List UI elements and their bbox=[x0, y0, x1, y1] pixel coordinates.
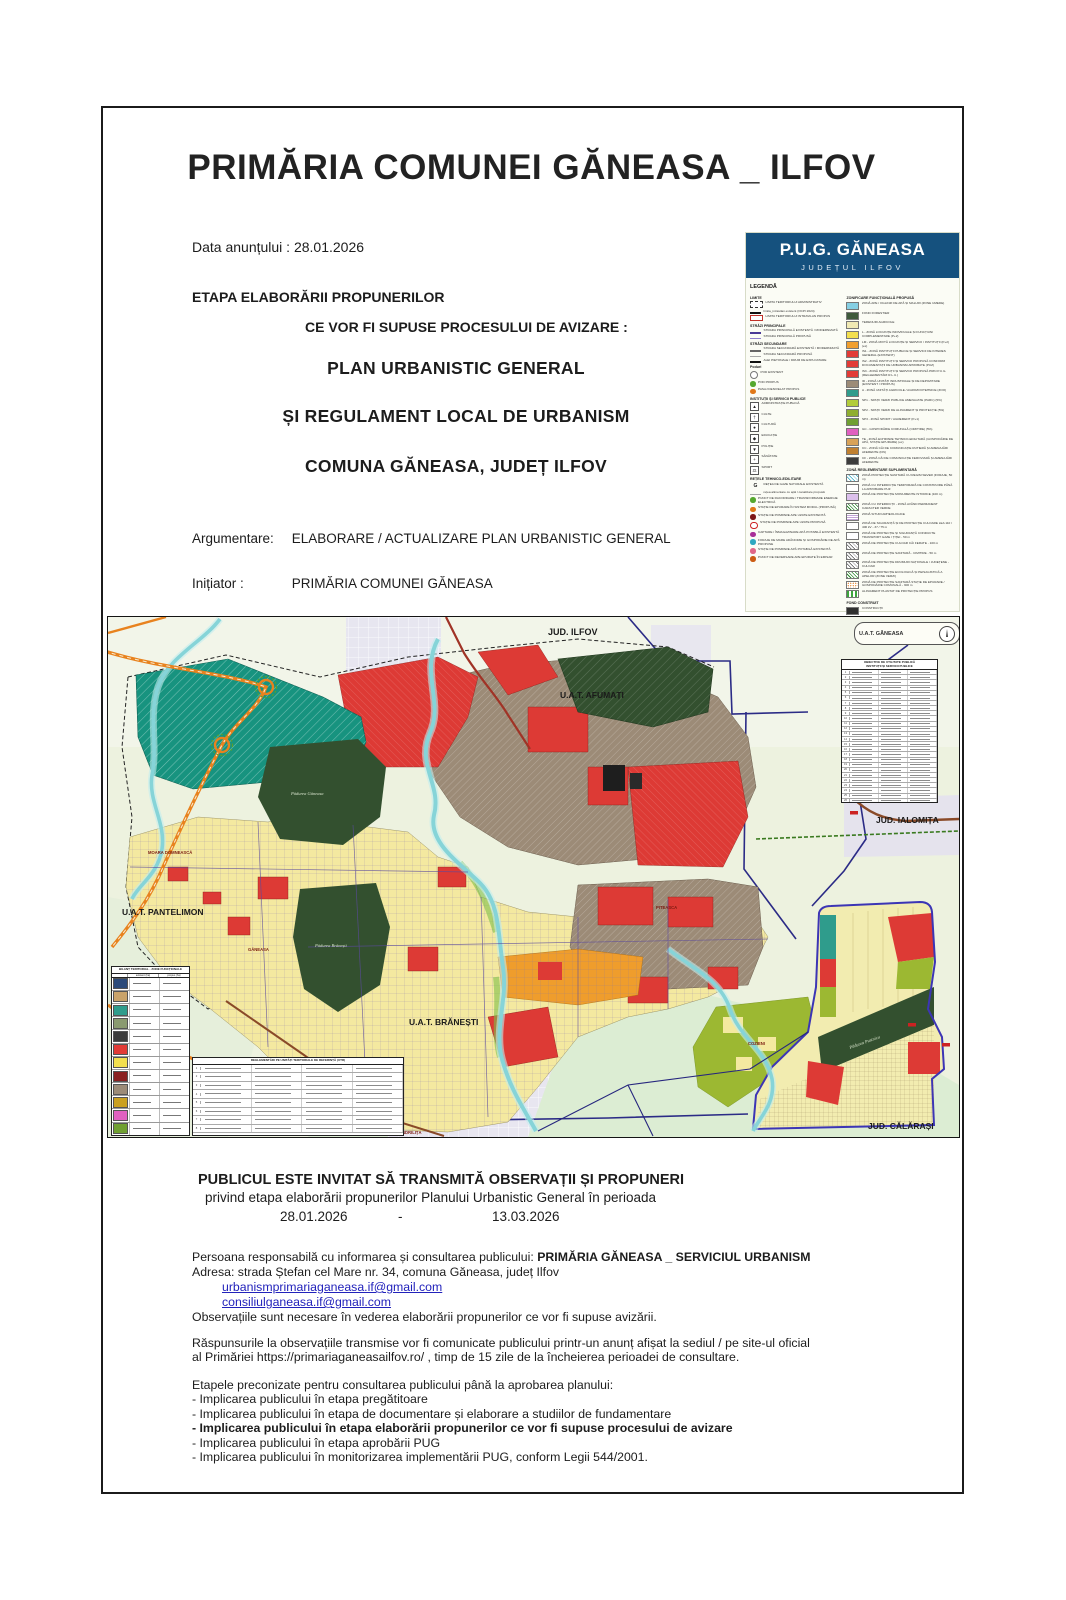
zoning-item: LM - ZONĂ MIXTĂ LOCUINȚE ȘI SERVICII / I… bbox=[846, 341, 955, 349]
table-row: 5 bbox=[193, 1099, 403, 1108]
legend-item: STAȚIE DE POMPARE APE UZATE PROPUSĂ bbox=[750, 521, 842, 529]
balance-row-swatch bbox=[113, 1044, 128, 1055]
legend-section-heading: LIMITE bbox=[750, 296, 842, 300]
built-item: CONSTRUCȚII bbox=[846, 607, 955, 615]
legend-section-heading: REȚELE TEHNICO-EDILITARE bbox=[750, 477, 842, 481]
objectives-table-rows: 1 2 3 4 5 6 bbox=[842, 670, 937, 803]
email-link-consiliu[interactable]: consiliulganeasa.if@gmail.com bbox=[222, 1295, 391, 1309]
pug-legend-panel: P.U.G. GĂNEASA JUDEȚUL ILFOV LEGENDĂ LIM… bbox=[745, 232, 960, 612]
balance-row-swatch bbox=[113, 1097, 128, 1108]
label-jud-ilfov: JUD. ILFOV bbox=[548, 627, 598, 637]
label-ganeasa: GĂNEASA bbox=[248, 947, 269, 952]
zoning-item-label: IS1 - ZONĂ INSTITUȚII PUBLICE ȘI SERVICI… bbox=[862, 350, 955, 358]
stage-item: - Implicarea publicului în etapa aprobăr… bbox=[192, 1436, 733, 1451]
legend-symbol-icon bbox=[750, 332, 761, 334]
responsible-line: Persoana responsabilă cu informarea și c… bbox=[192, 1250, 811, 1265]
legend-item: ALEI PIETONALE / DRUM DE EXPLOATARE bbox=[750, 359, 842, 363]
balance-row-swatch bbox=[113, 1084, 128, 1095]
zoning-item: SP1 - SPAȚII VERZI PUBLICE AMENAJATE (PA… bbox=[846, 399, 955, 407]
zoning-swatch bbox=[846, 438, 859, 446]
zoning-item: FOND FORESTIER bbox=[846, 312, 955, 320]
extra-zone-item: ZONĂ SITURI ARHEOLOGICE bbox=[846, 513, 955, 521]
extra-zone-swatch bbox=[846, 484, 859, 492]
zoning-item-label: GC - GOSPODĂRIE COMUNALĂ (CIMITIRE) (5%) bbox=[862, 428, 932, 432]
legend-symbol-icon bbox=[750, 381, 756, 387]
legend-symbol-icon: ▼ bbox=[750, 445, 759, 454]
legend-section-heading: INSTITUȚII ȘI SERVICII PUBLICE bbox=[750, 397, 842, 401]
objectives-table-title2: INSTITUȚII ȘI SERVICII PUBLICE bbox=[866, 664, 912, 668]
address-line: Adresa: strada Ștefan cel Mare nr. 34, c… bbox=[192, 1265, 559, 1280]
zoning-item: TE - ZONĂ ECHIPARE TEHNICO-EDILITARĂ (GO… bbox=[846, 438, 955, 446]
legend-item: ⚖ SPORT bbox=[750, 466, 842, 475]
compass-icon bbox=[939, 626, 955, 642]
table-row: 7 bbox=[193, 1116, 403, 1125]
extra-zone-label: ZONĂ DE SIGURANȚĂ ȘI DE PROTECȚIE CULOAR… bbox=[862, 522, 955, 530]
balance-row-swatch bbox=[113, 1018, 128, 1029]
label-uat-branesti: U.A.T. BRĂNEȘTI bbox=[409, 1017, 478, 1027]
balance-row-swatch bbox=[113, 978, 128, 989]
legend-symbol-icon bbox=[750, 350, 761, 352]
legend-symbol-icon: + bbox=[750, 455, 759, 464]
legend-item-label: PUNCT DE RACORDARE / TRANSFORMARE ENERGI… bbox=[758, 497, 842, 505]
public-invitation-heading: PUBLICUL ESTE INVITAT SĂ TRANSMITĂ OBSER… bbox=[198, 1172, 684, 1188]
legend-item-label: STAȚIE DE POMPARE APE UZATE PROPUSĂ bbox=[760, 521, 826, 525]
zoning-heading: ZONIFICARE FUNCȚIONALĂ PROPUSĂ bbox=[846, 296, 955, 300]
legend-item-label: REȚEA DE GAZE NATURALE EXISTENTĂ bbox=[764, 483, 824, 487]
balance-row bbox=[112, 1096, 189, 1109]
zoning-swatch bbox=[846, 350, 859, 358]
period-end: 13.03.2026 bbox=[492, 1209, 560, 1224]
legend-item: STRADA PRINCIPALĂ PROPUSĂ bbox=[750, 335, 842, 339]
zoning-swatch bbox=[846, 380, 859, 388]
zoning-item-label: SP3 - ZONĂ SPORT / AGREMENT (P+1) bbox=[862, 418, 919, 422]
label-forest-b: Pădurea Brănești bbox=[314, 943, 347, 948]
extra-zone-swatch bbox=[846, 503, 859, 511]
zoning-swatch bbox=[846, 447, 859, 455]
initiator-label: Inițiator : bbox=[192, 576, 288, 591]
legend-left-column: LIMITE LIMITA TERITORIULUI ADMINISTRATIV… bbox=[750, 293, 842, 627]
extra-zone-item: ZONĂ CU INTERDICȚIE TEMPORARĂ DE CONSTRU… bbox=[846, 484, 955, 492]
territorial-balance-table: BILANȚ TERITORIAL - ZONE FUNCȚIONALE exi… bbox=[111, 966, 190, 1136]
balance-row-swatch bbox=[113, 1110, 128, 1121]
legend-item-label: CULTE bbox=[762, 413, 772, 417]
zoning-swatch bbox=[846, 428, 859, 436]
extra-zone-label: ZONĂ DE PROTECȚIE DRUMURI NAȚIONALE / JU… bbox=[862, 561, 955, 569]
legend-symbol-icon bbox=[750, 389, 756, 395]
extra-zone-swatch bbox=[846, 474, 859, 482]
legend-item-label: EDUCAȚIE bbox=[762, 434, 778, 438]
legend-item-label: LIMITA TERITORIULUI ADMINISTRATIV bbox=[766, 301, 822, 305]
legend-item-label: POD PROPUS bbox=[758, 381, 779, 385]
built-heading: FOND CONSTRUIT bbox=[846, 601, 955, 605]
extra-zone-item: ZONĂ DE PROTECȚIE SANITARĂ - CIMITIRE - … bbox=[846, 552, 955, 560]
legend-item: rețea alimentare cu apă / canalizare pro… bbox=[750, 491, 842, 495]
extra-zone-item: ZONĂ PROTECȚIE SANITARĂ CU REGIM SEVER (… bbox=[846, 474, 955, 482]
legend-item-label: PASAJ DENIVELAT PROPUS bbox=[758, 388, 799, 392]
label-uat-pantelimon: U.A.T. PANTELIMON bbox=[122, 907, 204, 917]
zoning-item-label: ZONĂ APE / OGLINZI DE APĂ ȘI MALURI (ZON… bbox=[862, 302, 944, 306]
extra-zone-swatch bbox=[846, 561, 859, 569]
extra-zone-swatch bbox=[846, 532, 859, 540]
zoning-item-label: FOND FORESTIER bbox=[862, 312, 889, 316]
zoning-swatch bbox=[846, 457, 859, 465]
legend-item: STAȚIE DE POMPARE APE UZATE EXISTENTĂ bbox=[750, 514, 842, 520]
doc-title-1: PLAN URBANISTIC GENERAL bbox=[150, 358, 762, 379]
stage-subheading: CE VOR FI SUPUSE PROCESULUI DE AVIZARE : bbox=[305, 319, 628, 335]
extra-zone-swatch bbox=[846, 581, 859, 589]
balance-row-swatch bbox=[113, 1057, 128, 1068]
table-row: 1 bbox=[193, 1065, 403, 1074]
table-row: 6 bbox=[193, 1108, 403, 1117]
legend-item-label: STAȚIE DE EPURARE ÎN SISTEM MODUL (PROPU… bbox=[758, 506, 836, 510]
legend-symbol-icon bbox=[750, 356, 761, 358]
extra-zone-label: ZONĂ DE PROTECȚIE ECOLOGICĂ ȘI PEISAGIST… bbox=[862, 571, 955, 579]
objectives-table: OBIECTIVE DE UTILITATE PUBLICĂ INSTITUȚI… bbox=[841, 659, 938, 803]
stage-item: - Implicarea publicului în monitorizarea… bbox=[192, 1450, 733, 1465]
extra-zone-item: ZONĂ CU INTERDICȚII - ZONĂ AVÂND PERMANE… bbox=[846, 503, 955, 511]
legend-symbol-icon bbox=[750, 507, 756, 513]
legend-symbol-icon bbox=[750, 539, 756, 545]
legend-item-label: limita_intravilan existent (OCPI 2024) bbox=[764, 310, 815, 314]
stages-intro: Etapele preconizate pentru consultarea p… bbox=[192, 1378, 613, 1393]
extra-zone-item: ZONĂ DE PROTECȚIE MONUMENTE ISTORICE (10… bbox=[846, 493, 955, 501]
extra-zone-item: ZONĂ DE SIGURANȚĂ ȘI DE PROTECȚIE CULOAR… bbox=[846, 522, 955, 530]
zoning-swatch bbox=[846, 341, 859, 349]
legend-item: ◆ EDUCAȚIE bbox=[750, 434, 842, 443]
balance-row bbox=[112, 1109, 189, 1122]
initiator-value: PRIMĂRIA COMUNEI GĂNEASA bbox=[292, 576, 493, 591]
zoning-item-label: IS2 - ZONĂ INSTITUȚII ȘI SERVICII PROPUS… bbox=[862, 360, 955, 368]
legend-symbol-icon: G bbox=[750, 483, 761, 490]
legend-item: CAPTARE / ÎNMAGAZINARE APĂ POTABILĂ EXIS… bbox=[750, 531, 842, 537]
legend-symbol-icon bbox=[750, 312, 761, 314]
utr-table: REGLEMENTĂRI PE UNITĂȚI TERITORIALE DE R… bbox=[192, 1057, 404, 1136]
extra-zone-swatch bbox=[846, 513, 859, 521]
uat-ganeasa-box: U.A.T. GĂNEASA bbox=[854, 622, 960, 645]
zoning-swatch bbox=[846, 418, 859, 426]
legend-item-label: STRADA SECUNDARĂ PROPUSĂ bbox=[764, 353, 813, 357]
legend-item-label: CULTURĂ bbox=[762, 423, 776, 427]
zoning-swatch bbox=[846, 321, 859, 329]
email-link-urbanism[interactable]: urbanismprimariaganeasa.if@gmail.com bbox=[222, 1280, 442, 1294]
extra-zone-label: ALINIAMENT PLANTAT DE PROTECȚIE PROPUS bbox=[862, 590, 932, 594]
zoning-swatch bbox=[846, 389, 859, 397]
zoning-item: ZONĂ APE / OGLINZI DE APĂ ȘI MALURI (ZON… bbox=[846, 302, 955, 310]
extra-zone-item: ZONĂ DE PROTECȚIE CULOAR CĂI FERATE - 10… bbox=[846, 542, 955, 550]
legend-symbol-icon bbox=[750, 497, 756, 503]
label-uat-afumati: U.A.T. AFUMAȚI bbox=[560, 690, 624, 700]
doc-title-3: COMUNA GĂNEASA, JUDEȚ ILFOV bbox=[150, 456, 762, 477]
balance-row-swatch bbox=[113, 1123, 128, 1134]
public-invitation-subheading: privind etapa elaborării propunerilor Pl… bbox=[205, 1190, 656, 1205]
balance-row bbox=[112, 1057, 189, 1070]
extra-zone-swatch bbox=[846, 571, 859, 579]
legend-section-heading: Poduri bbox=[750, 365, 842, 369]
legend-item-label: CAPTARE / ÎNMAGAZINARE APĂ POTABILĂ EXIS… bbox=[758, 531, 839, 535]
legend-item-label: STAȚIE DE POMPARE APĂ POTABILĂ EXISTENTĂ bbox=[758, 548, 831, 552]
legend-item-label: FORAJE DE MARE ADÂNCIME ȘI GOSPODĂRIE DE… bbox=[758, 539, 842, 547]
zoning-item: L - ZONĂ LOCUINȚE INDIVIDUALE ȘI FUNCȚIU… bbox=[846, 331, 955, 339]
zoning-item: CF - ZONĂ CĂI DE COMUNICAȚIE FEROVIARĂ Ș… bbox=[846, 457, 955, 465]
zoning-item: IS2 - ZONĂ INSTITUȚII ȘI SERVICII PROPUS… bbox=[846, 360, 955, 368]
legend-item-label: SPORT bbox=[762, 466, 773, 470]
balance-row-swatch bbox=[113, 1071, 128, 1082]
legend-symbol-icon bbox=[750, 532, 756, 538]
legend-item: STRADA SECUNDARĂ PROPUSĂ bbox=[750, 353, 842, 357]
zoning-item: TERENURI AGRICOLE bbox=[846, 321, 955, 329]
stage-item: - Implicarea publicului în etapa elaboră… bbox=[192, 1421, 733, 1436]
extra-zone-swatch bbox=[846, 542, 859, 550]
legend-item: PASAJ DENIVELAT PROPUS bbox=[750, 388, 842, 394]
mixed-zone-orange bbox=[498, 949, 643, 1005]
extra-zone-label: ZONĂ DE PROTECȚIE ȘI SIGURANȚĂ CONDUCTE … bbox=[862, 532, 955, 540]
argument-value: ELABORARE / ACTUALIZARE PLAN URBANISTIC … bbox=[292, 531, 671, 546]
legend-symbol-icon: ◆ bbox=[750, 434, 759, 443]
legend-item: POD PROPUS bbox=[750, 381, 842, 387]
table-row: 26 bbox=[842, 799, 937, 803]
legend-item-label: POLIȚIE bbox=[762, 445, 774, 449]
legend-item-label: POD EXISTENT bbox=[761, 371, 784, 375]
zoning-swatch bbox=[846, 409, 859, 417]
zoning-item: IS1 - ZONĂ INSTITUȚII PUBLICE ȘI SERVICI… bbox=[846, 350, 955, 358]
page-title: PRIMĂRIA COMUNEI GĂNEASA _ ILFOV bbox=[101, 148, 962, 188]
legend-item: LIMITA TERITORIULUI ADMINISTRATIV bbox=[750, 301, 842, 308]
extra-zone-item: ZONĂ DE PROTECȚIE ECOLOGICĂ ȘI PEISAGIST… bbox=[846, 571, 955, 579]
extra-zone-label: ZONĂ DE PROTECȚIE CULOAR CĂI FERATE - 10… bbox=[862, 542, 938, 546]
extra-zones-heading: ZONĂ REGLEMENTARE SUPLIMENTARĂ bbox=[846, 468, 955, 472]
legend-symbol-icon bbox=[750, 514, 756, 520]
legend-item-label: PUNCT DE DEVERSARE APE EPURATE ÎN EMISAR bbox=[758, 556, 833, 560]
zoning-item: SP2 - SPAȚII VERZI DE ALINIAMENT ȘI PROT… bbox=[846, 409, 955, 417]
zoning-item-label: IS3 - ZONĂ INSTITUȚII ȘI SERVICII PROPUS… bbox=[862, 370, 955, 378]
zoning-item: SP3 - ZONĂ SPORT / AGREMENT (P+1) bbox=[846, 418, 955, 426]
zoning-item-label: CC - ZONĂ CĂI DE COMUNICAȚIE RUTIERĂ ȘI … bbox=[862, 447, 955, 455]
extra-zone-swatch bbox=[846, 522, 859, 530]
legend-item: LIMITA TERITORIULUI INTRAVILAN PROPUS bbox=[750, 315, 842, 321]
period-dash: - bbox=[398, 1209, 403, 1224]
extra-zone-swatch bbox=[846, 552, 859, 560]
legend-title: P.U.G. GĂNEASA bbox=[748, 240, 957, 260]
zoning-swatch bbox=[846, 360, 859, 368]
announcement-date: Data anunțului : 28.01.2026 bbox=[192, 239, 364, 255]
legend-item: ▼ POLIȚIE bbox=[750, 445, 842, 454]
extra-zone-label: ZONĂ PROTECȚIE SANITARĂ CU REGIM SEVER (… bbox=[862, 474, 955, 482]
balance-row bbox=[112, 1030, 189, 1043]
zoning-list: ZONĂ APE / OGLINZI DE APĂ ȘI MALURI (ZON… bbox=[846, 302, 955, 465]
legend-symbol-icon: † bbox=[750, 413, 759, 422]
balance-table-rows bbox=[112, 978, 189, 1136]
observations-line: Observațiile sunt necesare în vederea el… bbox=[192, 1310, 657, 1325]
utr-table-title: REGLEMENTĂRI PE UNITĂȚI TERITORIALE DE R… bbox=[193, 1058, 403, 1065]
legend-symbol-icon: ● bbox=[750, 423, 759, 432]
legend-item-label: ALEI PIETONALE / DRUM DE EXPLOATARE bbox=[764, 359, 827, 363]
legend-subtitle: JUDEȚUL ILFOV bbox=[748, 263, 957, 272]
balance-row bbox=[112, 1044, 189, 1057]
legend-header: P.U.G. GĂNEASA JUDEȚUL ILFOV bbox=[746, 233, 959, 278]
zoning-item-label: ID - ZONĂ UNITĂȚI INDUSTRIALE ȘI DE DEPO… bbox=[862, 380, 955, 388]
argument-row: Argumentare: ELABORARE / ACTUALIZARE PLA… bbox=[192, 531, 671, 546]
period-start: 28.01.2026 bbox=[280, 1209, 348, 1224]
legend-item: FORAJE DE MARE ADÂNCIME ȘI GOSPODĂRIE DE… bbox=[750, 539, 842, 547]
legend-heading: LEGENDĂ bbox=[750, 284, 955, 290]
legend-item-label: STAȚIE DE POMPARE APE UZATE EXISTENTĂ bbox=[758, 514, 826, 518]
legend-item: † CULTE bbox=[750, 413, 842, 422]
zoning-item: IS3 - ZONĂ INSTITUȚII ȘI SERVICII PROPUS… bbox=[846, 370, 955, 378]
built-swatch bbox=[846, 607, 859, 615]
zoning-item: ID - ZONĂ UNITĂȚI INDUSTRIALE ȘI DE DEPO… bbox=[846, 380, 955, 388]
legend-item: + SĂNĂTATE bbox=[750, 455, 842, 464]
responsible-label: Persoana responsabilă cu informarea și c… bbox=[192, 1250, 537, 1264]
extra-zone-label: ZONĂ CU INTERDICȚII - ZONĂ AVÂND PERMANE… bbox=[862, 503, 955, 511]
uat-ganeasa-label: U.A.T. GĂNEASA bbox=[859, 631, 903, 637]
legend-section-heading: STRĂZI SECUNDARE bbox=[750, 342, 842, 346]
zoning-swatch bbox=[846, 370, 859, 378]
answers-line1: Răspunsurile la observațiile transmise v… bbox=[192, 1336, 810, 1351]
label-jud-calarasi: JUD. CĂLĂRAȘI bbox=[868, 1121, 934, 1131]
extra-zone-label: ZONĂ DE PROTECȚIE SANITARĂ - CIMITIRE - … bbox=[862, 552, 936, 556]
legend-item-label: STRADA PRINCIPALĂ PROPUSĂ bbox=[764, 335, 811, 339]
zoning-item-label: A - ZONĂ UNITĂȚI AGRICOLE / AGROZOOTEHNI… bbox=[862, 389, 946, 393]
utr-table-rows: 1 2 3 4 5 6 bbox=[193, 1065, 403, 1134]
stage-heading: ETAPA ELABORĂRII PROPUNERILOR bbox=[192, 289, 445, 305]
legend-item: ▲ ADMINISTRAȚIE PUBLICĂ bbox=[750, 402, 842, 411]
legend-symbol-icon bbox=[750, 315, 763, 321]
legend-item: STRADA PRINCIPALĂ EXISTENTĂ / MODERNIZAT… bbox=[750, 329, 842, 333]
zoning-item-label: TE - ZONĂ ECHIPARE TEHNICO-EDILITARĂ (GO… bbox=[862, 438, 955, 446]
zoning-item-label: SP1 - SPAȚII VERZI PUBLICE AMENAJATE (PA… bbox=[862, 399, 942, 403]
label-moara-domneasca: MOARA DOMNEASCĂ bbox=[148, 850, 192, 855]
zoning-swatch bbox=[846, 312, 859, 320]
balance-col1: existent (ha) bbox=[127, 974, 158, 977]
extra-zone-item: ZONĂ DE PROTECȚIE SANITARĂ STAȚIE DE EPU… bbox=[846, 581, 955, 589]
zoning-item: GC - GOSPODĂRIE COMUNALĂ (CIMITIRE) (5%) bbox=[846, 428, 955, 436]
legend-symbol-icon bbox=[750, 522, 758, 530]
extra-zone-label: ZONĂ DE PROTECȚIE MONUMENTE ISTORICE (10… bbox=[862, 493, 942, 497]
extra-zone-label: ZONĂ CU INTERDICȚIE TEMPORARĂ DE CONSTRU… bbox=[862, 484, 955, 492]
zoning-item-label: L - ZONĂ LOCUINȚE INDIVIDUALE ȘI FUNCȚIU… bbox=[862, 331, 955, 339]
balance-row bbox=[112, 1004, 189, 1017]
balance-row-swatch bbox=[113, 991, 128, 1002]
legend-item: POD EXISTENT bbox=[750, 371, 842, 379]
balance-row bbox=[112, 1070, 189, 1083]
legend-symbol-icon: ⚖ bbox=[750, 466, 759, 475]
legend-section-heading: STRĂZI PRINCIPALE bbox=[750, 324, 842, 328]
label-piteasca: PITEASCA bbox=[656, 905, 677, 910]
initiator-row: Inițiator : PRIMĂRIA COMUNEI GĂNEASA bbox=[192, 576, 493, 591]
balance-row bbox=[112, 1123, 189, 1136]
legend-item-label: LIMITA TERITORIULUI INTRAVILAN PROPUS bbox=[766, 315, 831, 319]
legend-symbol-icon bbox=[750, 371, 758, 379]
legend-item-label: STRADA SECUNDARĂ EXISTENTĂ / MODERNIZATĂ bbox=[764, 347, 840, 351]
extra-zone-label: ZONĂ SITURI ARHEOLOGICE bbox=[862, 513, 905, 517]
zoning-swatch bbox=[846, 331, 859, 339]
legend-item-label: STRADA PRINCIPALĂ EXISTENTĂ / MODERNIZAT… bbox=[764, 329, 838, 333]
legend-item: STRADA SECUNDARĂ EXISTENTĂ / MODERNIZATĂ bbox=[750, 347, 842, 351]
extra-zone-item: ALINIAMENT PLANTAT DE PROTECȚIE PROPUS bbox=[846, 590, 955, 598]
legend-symbol-icon bbox=[750, 361, 761, 363]
extra-zones-list: ZONĂ PROTECȚIE SANITARĂ CU REGIM SEVER (… bbox=[846, 474, 955, 598]
label-cozieni: COZIENI bbox=[748, 1041, 765, 1046]
extra-zone-item: ZONĂ DE PROTECȚIE ȘI SIGURANȚĂ CONDUCTE … bbox=[846, 532, 955, 540]
extra-zone-label: ZONĂ DE PROTECȚIE SANITARĂ STAȚIE DE EPU… bbox=[862, 581, 955, 589]
stage-item: - Implicarea publicului în etapa de docu… bbox=[192, 1407, 733, 1422]
built-item-label: CONSTRUCȚII bbox=[862, 607, 883, 611]
argument-label: Argumentare: bbox=[192, 531, 288, 546]
legend-item: STAȚIE DE POMPARE APĂ POTABILĂ EXISTENTĂ bbox=[750, 548, 842, 554]
legend-item: G REȚEA DE GAZE NATURALE EXISTENTĂ bbox=[750, 483, 842, 490]
zoning-swatch bbox=[846, 399, 859, 407]
legend-item: ● CULTURĂ bbox=[750, 423, 842, 432]
legend-symbol-icon bbox=[750, 301, 763, 308]
label-forest-a: Pădurea Găneasa bbox=[290, 791, 324, 796]
stages-list: - Implicarea publicului în etapa pregăti… bbox=[192, 1392, 733, 1465]
balance-row-swatch bbox=[113, 1005, 128, 1016]
zoning-item-label: TERENURI AGRICOLE bbox=[862, 321, 895, 325]
answers-line2: al Primăriei https://primariaganeasailfo… bbox=[192, 1350, 739, 1365]
stage-item: - Implicarea publicului în etapa pregăti… bbox=[192, 1392, 733, 1407]
label-jud-ialomita: JUD. IALOMIȚA bbox=[876, 815, 939, 825]
extra-zone-item: ZONĂ DE PROTECȚIE DRUMURI NAȚIONALE / JU… bbox=[846, 561, 955, 569]
extra-zone-swatch bbox=[846, 493, 859, 501]
extra-zone-swatch bbox=[846, 590, 859, 598]
zoning-swatch bbox=[846, 302, 859, 310]
legend-symbol-icon bbox=[750, 548, 756, 554]
balance-row-swatch bbox=[113, 1031, 128, 1042]
table-row: 8 bbox=[193, 1125, 403, 1134]
balance-row bbox=[112, 1017, 189, 1030]
balance-table-title: BILANȚ TERITORIAL - ZONE FUNCȚIONALE bbox=[112, 967, 189, 974]
zoning-item-label: SP2 - SPAȚII VERZI DE ALINIAMENT ȘI PROT… bbox=[862, 409, 944, 413]
balance-row bbox=[112, 991, 189, 1004]
doc-title-2: ȘI REGULAMENT LOCAL DE URBANISM bbox=[150, 406, 762, 427]
legend-item: limita_intravilan existent (OCPI 2024) bbox=[750, 310, 842, 314]
legend-item-label: rețea alimentare cu apă / canalizare pro… bbox=[764, 491, 825, 495]
zoning-item-label: LM - ZONĂ MIXTĂ LOCUINȚE ȘI SERVICII / I… bbox=[862, 341, 955, 349]
balance-col2: propus (ha) bbox=[158, 974, 189, 977]
legend-symbol-icon bbox=[750, 556, 756, 562]
table-row: 3 bbox=[193, 1082, 403, 1091]
legend-item-label: ADMINISTRAȚIE PUBLICĂ bbox=[762, 402, 800, 406]
zoning-item-label: CF - ZONĂ CĂI DE COMUNICAȚIE FEROVIARĂ Ș… bbox=[862, 457, 955, 465]
zoning-item: A - ZONĂ UNITĂȚI AGRICOLE / AGROZOOTEHNI… bbox=[846, 389, 955, 397]
legend-item: PUNCT DE DEVERSARE APE EPURATE ÎN EMISAR bbox=[750, 556, 842, 562]
zoning-item: CC - ZONĂ CĂI DE COMUNICAȚIE RUTIERĂ ȘI … bbox=[846, 447, 955, 455]
legend-symbol-icon: ▲ bbox=[750, 402, 759, 411]
table-row: 4 bbox=[193, 1090, 403, 1099]
balance-row bbox=[112, 1083, 189, 1096]
pug-map: JUD. ILFOV U.A.T. AFUMAȚI JUD. IALOMIȚA … bbox=[107, 616, 960, 1138]
legend-item-label: SĂNĂTATE bbox=[762, 455, 778, 459]
balance-row bbox=[112, 978, 189, 991]
legend-item: STAȚIE DE EPURARE ÎN SISTEM MODUL (PROPU… bbox=[750, 506, 842, 512]
responsible-value: PRIMĂRIA GĂNEASA _ SERVICIUL URBANISM bbox=[537, 1250, 810, 1264]
legend-symbol-icon bbox=[750, 338, 761, 340]
table-row: 2 bbox=[193, 1073, 403, 1082]
legend-item: PUNCT DE RACORDARE / TRANSFORMARE ENERGI… bbox=[750, 497, 842, 505]
